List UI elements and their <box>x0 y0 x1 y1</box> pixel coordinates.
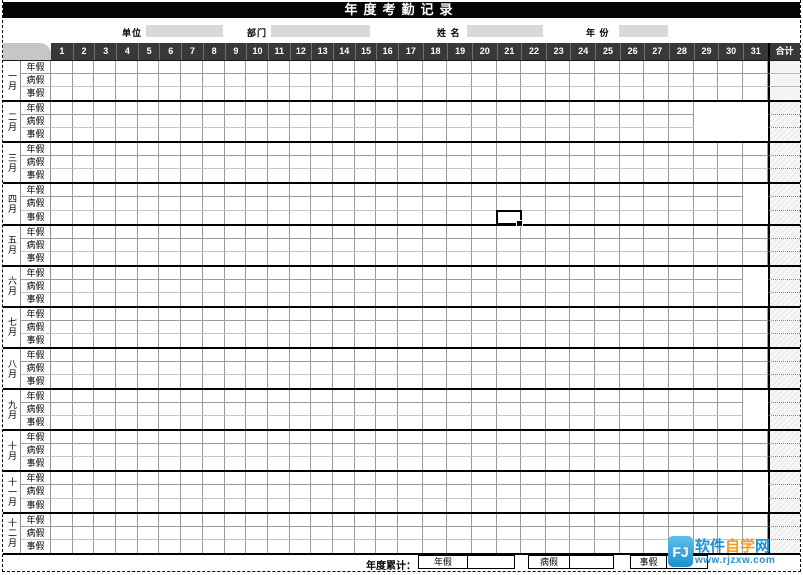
day-cell[interactable] <box>718 87 743 100</box>
day-cell[interactable] <box>669 499 694 512</box>
day-cell[interactable] <box>116 403 138 416</box>
day-cell[interactable] <box>73 239 95 252</box>
day-cell[interactable] <box>159 74 181 87</box>
day-cell[interactable] <box>246 184 268 197</box>
day-cell[interactable] <box>546 540 571 553</box>
day-cell[interactable] <box>203 239 225 252</box>
day-cell[interactable] <box>311 334 333 347</box>
day-cell[interactable] <box>138 169 160 182</box>
day-cell[interactable] <box>620 211 645 224</box>
day-cell[interactable] <box>290 74 312 87</box>
day-cell[interactable] <box>51 485 73 498</box>
day-cell[interactable] <box>447 362 472 375</box>
total-cell[interactable] <box>768 308 800 321</box>
day-cell[interactable] <box>447 457 472 470</box>
day-cell[interactable] <box>743 143 768 156</box>
selected-cell[interactable] <box>497 211 522 224</box>
day-cell[interactable] <box>290 375 312 388</box>
day-cell[interactable] <box>546 61 571 74</box>
day-cell[interactable] <box>355 362 377 375</box>
day-cell[interactable] <box>268 334 290 347</box>
day-cell[interactable] <box>694 472 719 485</box>
day-cell[interactable] <box>644 457 669 470</box>
day-cell[interactable] <box>546 457 571 470</box>
day-cell[interactable] <box>311 485 333 498</box>
day-cell[interactable] <box>447 74 472 87</box>
day-cell[interactable] <box>644 403 669 416</box>
day-cell[interactable] <box>159 102 181 115</box>
day-cell[interactable] <box>138 293 160 306</box>
day-cell[interactable] <box>497 87 522 100</box>
day-cell[interactable] <box>355 128 377 141</box>
day-cell[interactable] <box>116 87 138 100</box>
day-cell[interactable] <box>246 457 268 470</box>
day-cell[interactable] <box>546 403 571 416</box>
day-cell[interactable] <box>743 334 768 347</box>
day-cell[interactable] <box>472 403 497 416</box>
day-cell[interactable] <box>472 334 497 347</box>
day-cell[interactable] <box>225 211 247 224</box>
day-cell[interactable] <box>743 457 768 470</box>
day-cell[interactable] <box>398 239 423 252</box>
day-cell[interactable] <box>225 184 247 197</box>
day-cell[interactable] <box>290 156 312 169</box>
day-cell[interactable] <box>203 431 225 444</box>
day-cell[interactable] <box>497 184 522 197</box>
day-cell[interactable] <box>94 349 116 362</box>
day-cell[interactable] <box>333 115 355 128</box>
day-cell[interactable] <box>311 128 333 141</box>
day-cell[interactable] <box>620 308 645 321</box>
day-cell[interactable] <box>311 211 333 224</box>
day-cell[interactable] <box>497 102 522 115</box>
day-cell[interactable] <box>620 362 645 375</box>
day-cell[interactable] <box>743 514 768 527</box>
day-cell[interactable] <box>497 334 522 347</box>
total-cell[interactable] <box>768 267 800 280</box>
day-cell[interactable] <box>447 431 472 444</box>
day-cell[interactable] <box>94 115 116 128</box>
day-cell[interactable] <box>203 514 225 527</box>
day-cell[interactable] <box>620 197 645 210</box>
day-cell[interactable] <box>290 444 312 457</box>
day-cell[interactable] <box>546 211 571 224</box>
day-cell[interactable] <box>620 169 645 182</box>
day-cell[interactable] <box>447 444 472 457</box>
day-cell[interactable] <box>620 321 645 334</box>
day-cell[interactable] <box>472 87 497 100</box>
day-cell[interactable] <box>595 514 620 527</box>
day-cell[interactable] <box>355 334 377 347</box>
total-cell[interactable] <box>768 143 800 156</box>
day-cell[interactable] <box>159 499 181 512</box>
day-cell[interactable] <box>521 540 546 553</box>
day-cell[interactable] <box>333 239 355 252</box>
day-cell[interactable] <box>138 74 160 87</box>
day-cell[interactable] <box>718 321 743 334</box>
day-cell[interactable] <box>644 169 669 182</box>
day-cell[interactable] <box>51 444 73 457</box>
day-cell[interactable] <box>644 321 669 334</box>
total-cell[interactable] <box>768 280 800 293</box>
day-cell[interactable] <box>423 252 448 265</box>
day-cell[interactable] <box>138 143 160 156</box>
day-cell[interactable] <box>225 293 247 306</box>
day-cell[interactable] <box>51 472 73 485</box>
day-cell[interactable] <box>694 499 719 512</box>
day-cell[interactable] <box>472 457 497 470</box>
total-cell[interactable] <box>768 293 800 306</box>
day-cell[interactable] <box>311 197 333 210</box>
day-cell[interactable] <box>398 321 423 334</box>
day-cell[interactable] <box>290 115 312 128</box>
day-cell[interactable] <box>246 252 268 265</box>
day-cell[interactable] <box>398 102 423 115</box>
day-cell[interactable] <box>51 280 73 293</box>
day-cell[interactable] <box>311 74 333 87</box>
total-cell[interactable] <box>768 226 800 239</box>
day-cell[interactable] <box>398 390 423 403</box>
day-cell[interactable] <box>138 457 160 470</box>
day-cell[interactable] <box>376 457 398 470</box>
day-cell[interactable] <box>423 239 448 252</box>
day-cell[interactable] <box>159 431 181 444</box>
day-cell[interactable] <box>246 321 268 334</box>
day-cell[interactable] <box>546 375 571 388</box>
day-cell[interactable] <box>311 169 333 182</box>
day-cell[interactable] <box>73 349 95 362</box>
day-cell[interactable] <box>51 267 73 280</box>
day-cell[interactable] <box>159 293 181 306</box>
day-cell[interactable] <box>620 267 645 280</box>
day-cell[interactable] <box>181 87 203 100</box>
day-cell[interactable] <box>203 334 225 347</box>
day-cell[interactable] <box>159 444 181 457</box>
day-cell[interactable] <box>94 280 116 293</box>
day-cell[interactable] <box>497 527 522 540</box>
day-cell[interactable] <box>268 252 290 265</box>
day-cell[interactable] <box>718 226 743 239</box>
day-cell[interactable] <box>116 156 138 169</box>
day-cell[interactable] <box>51 308 73 321</box>
day-cell[interactable] <box>355 485 377 498</box>
day-cell[interactable] <box>246 226 268 239</box>
day-cell[interactable] <box>669 390 694 403</box>
day-cell[interactable] <box>546 184 571 197</box>
day-cell[interactable] <box>376 334 398 347</box>
total-cell[interactable] <box>768 321 800 334</box>
day-cell[interactable] <box>521 362 546 375</box>
day-cell[interactable] <box>376 211 398 224</box>
day-cell[interactable] <box>694 143 719 156</box>
day-cell[interactable] <box>694 444 719 457</box>
day-cell[interactable] <box>333 61 355 74</box>
day-cell[interactable] <box>333 74 355 87</box>
day-cell[interactable] <box>225 128 247 141</box>
day-cell[interactable] <box>376 431 398 444</box>
day-cell[interactable] <box>669 197 694 210</box>
day-cell[interactable] <box>570 211 595 224</box>
day-cell[interactable] <box>355 403 377 416</box>
day-cell[interactable] <box>51 197 73 210</box>
day-cell[interactable] <box>290 362 312 375</box>
day-cell[interactable] <box>423 293 448 306</box>
day-cell[interactable] <box>203 293 225 306</box>
day-cell[interactable] <box>570 87 595 100</box>
day-cell[interactable] <box>73 444 95 457</box>
day-cell[interactable] <box>73 197 95 210</box>
day-cell[interactable] <box>116 197 138 210</box>
day-cell[interactable] <box>595 321 620 334</box>
day-cell[interactable] <box>246 156 268 169</box>
day-cell[interactable] <box>644 74 669 87</box>
day-cell[interactable] <box>51 61 73 74</box>
day-cell[interactable] <box>225 375 247 388</box>
day-cell[interactable] <box>743 169 768 182</box>
day-cell[interactable] <box>376 390 398 403</box>
day-cell[interactable] <box>521 390 546 403</box>
day-cell[interactable] <box>423 457 448 470</box>
day-cell[interactable] <box>290 403 312 416</box>
day-cell[interactable] <box>94 540 116 553</box>
day-cell[interactable] <box>620 375 645 388</box>
day-cell[interactable] <box>51 239 73 252</box>
day-cell[interactable] <box>570 514 595 527</box>
day-cell[interactable] <box>570 115 595 128</box>
day-cell[interactable] <box>398 375 423 388</box>
day-cell[interactable] <box>718 239 743 252</box>
total-cell[interactable] <box>768 457 800 470</box>
total-cell[interactable] <box>768 416 800 429</box>
day-cell[interactable] <box>94 485 116 498</box>
day-cell[interactable] <box>203 128 225 141</box>
day-cell[interactable] <box>94 143 116 156</box>
day-cell[interactable] <box>116 102 138 115</box>
day-cell[interactable] <box>595 252 620 265</box>
day-cell[interactable] <box>268 211 290 224</box>
day-cell[interactable] <box>521 499 546 512</box>
day-cell[interactable] <box>497 349 522 362</box>
day-cell[interactable] <box>694 514 719 527</box>
day-cell[interactable] <box>51 293 73 306</box>
day-cell[interactable] <box>398 293 423 306</box>
day-cell[interactable] <box>94 431 116 444</box>
day-cell[interactable] <box>116 226 138 239</box>
day-cell[interactable] <box>644 252 669 265</box>
day-cell[interactable] <box>181 375 203 388</box>
day-cell[interactable] <box>595 87 620 100</box>
day-cell[interactable] <box>246 514 268 527</box>
day-cell[interactable] <box>225 156 247 169</box>
day-cell[interactable] <box>159 416 181 429</box>
day-cell[interactable] <box>644 267 669 280</box>
day-cell[interactable] <box>159 169 181 182</box>
day-cell[interactable] <box>694 321 719 334</box>
day-cell[interactable] <box>472 184 497 197</box>
day-cell[interactable] <box>246 485 268 498</box>
day-cell[interactable] <box>497 540 522 553</box>
day-cell[interactable] <box>268 156 290 169</box>
day-cell[interactable] <box>570 156 595 169</box>
day-cell[interactable] <box>290 252 312 265</box>
day-cell[interactable] <box>246 211 268 224</box>
day-cell[interactable] <box>311 514 333 527</box>
day-cell[interactable] <box>447 87 472 100</box>
total-cell[interactable] <box>768 485 800 498</box>
day-cell[interactable] <box>669 349 694 362</box>
day-cell[interactable] <box>311 293 333 306</box>
day-cell[interactable] <box>290 197 312 210</box>
day-cell[interactable] <box>94 197 116 210</box>
day-cell[interactable] <box>51 390 73 403</box>
day-cell[interactable] <box>203 403 225 416</box>
day-cell[interactable] <box>644 485 669 498</box>
total-cell[interactable] <box>768 115 800 128</box>
day-cell[interactable] <box>743 375 768 388</box>
day-cell[interactable] <box>355 169 377 182</box>
day-cell[interactable] <box>94 102 116 115</box>
day-cell[interactable] <box>333 128 355 141</box>
day-cell[interactable] <box>333 527 355 540</box>
day-cell[interactable] <box>311 540 333 553</box>
day-cell[interactable] <box>472 416 497 429</box>
day-cell[interactable] <box>159 472 181 485</box>
day-cell[interactable] <box>423 143 448 156</box>
day-cell[interactable] <box>423 431 448 444</box>
day-cell[interactable] <box>73 226 95 239</box>
day-cell[interactable] <box>311 390 333 403</box>
day-cell[interactable] <box>333 403 355 416</box>
day-cell[interactable] <box>181 308 203 321</box>
day-cell[interactable] <box>51 226 73 239</box>
day-cell[interactable] <box>94 169 116 182</box>
day-cell[interactable] <box>225 514 247 527</box>
day-cell[interactable] <box>116 321 138 334</box>
day-cell[interactable] <box>181 457 203 470</box>
day-cell[interactable] <box>694 169 719 182</box>
day-cell[interactable] <box>94 293 116 306</box>
day-cell[interactable] <box>447 169 472 182</box>
day-cell[interactable] <box>138 362 160 375</box>
day-cell[interactable] <box>423 514 448 527</box>
day-cell[interactable] <box>268 375 290 388</box>
day-cell[interactable] <box>225 540 247 553</box>
day-cell[interactable] <box>644 280 669 293</box>
day-cell[interactable] <box>644 390 669 403</box>
day-cell[interactable] <box>355 321 377 334</box>
day-cell[interactable] <box>521 472 546 485</box>
day-cell[interactable] <box>116 334 138 347</box>
day-cell[interactable] <box>333 334 355 347</box>
day-cell[interactable] <box>595 211 620 224</box>
total-cell[interactable] <box>768 211 800 224</box>
day-cell[interactable] <box>694 431 719 444</box>
day-cell[interactable] <box>472 485 497 498</box>
day-cell[interactable] <box>94 156 116 169</box>
unit-input[interactable] <box>146 25 223 37</box>
day-cell[interactable] <box>94 252 116 265</box>
day-cell[interactable] <box>333 362 355 375</box>
day-cell[interactable] <box>333 499 355 512</box>
day-cell[interactable] <box>268 267 290 280</box>
day-cell[interactable] <box>203 184 225 197</box>
day-cell[interactable] <box>376 184 398 197</box>
day-cell[interactable] <box>472 211 497 224</box>
day-cell[interactable] <box>246 308 268 321</box>
day-cell[interactable] <box>51 169 73 182</box>
day-cell[interactable] <box>116 74 138 87</box>
day-cell[interactable] <box>423 308 448 321</box>
day-cell[interactable] <box>398 252 423 265</box>
day-cell[interactable] <box>116 514 138 527</box>
day-cell[interactable] <box>398 74 423 87</box>
day-cell[interactable] <box>181 334 203 347</box>
day-cell[interactable] <box>225 444 247 457</box>
day-cell[interactable] <box>355 115 377 128</box>
day-cell[interactable] <box>203 74 225 87</box>
day-cell[interactable] <box>694 239 719 252</box>
day-cell[interactable] <box>546 226 571 239</box>
day-cell[interactable] <box>472 472 497 485</box>
day-cell[interactable] <box>570 197 595 210</box>
day-cell[interactable] <box>595 362 620 375</box>
day-cell[interactable] <box>669 416 694 429</box>
day-cell[interactable] <box>333 349 355 362</box>
day-cell[interactable] <box>51 416 73 429</box>
day-cell[interactable] <box>398 184 423 197</box>
day-cell[interactable] <box>225 280 247 293</box>
day-cell[interactable] <box>497 280 522 293</box>
day-cell[interactable] <box>620 514 645 527</box>
day-cell[interactable] <box>497 390 522 403</box>
day-cell[interactable] <box>355 211 377 224</box>
day-cell[interactable] <box>181 321 203 334</box>
day-cell[interactable] <box>290 239 312 252</box>
day-cell[interactable] <box>472 431 497 444</box>
day-cell[interactable] <box>311 431 333 444</box>
day-cell[interactable] <box>644 375 669 388</box>
day-cell[interactable] <box>620 184 645 197</box>
day-cell[interactable] <box>51 540 73 553</box>
day-cell[interactable] <box>225 349 247 362</box>
day-cell[interactable] <box>355 431 377 444</box>
day-cell[interactable] <box>521 184 546 197</box>
day-cell[interactable] <box>138 87 160 100</box>
day-cell[interactable] <box>669 472 694 485</box>
day-cell[interactable] <box>290 184 312 197</box>
day-cell[interactable] <box>423 362 448 375</box>
day-cell[interactable] <box>644 514 669 527</box>
day-cell[interactable] <box>311 156 333 169</box>
day-cell[interactable] <box>73 375 95 388</box>
day-cell[interactable] <box>644 156 669 169</box>
day-cell[interactable] <box>570 252 595 265</box>
day-cell[interactable] <box>546 362 571 375</box>
day-cell[interactable] <box>423 527 448 540</box>
day-cell[interactable] <box>644 472 669 485</box>
day-cell[interactable] <box>620 74 645 87</box>
day-cell[interactable] <box>246 499 268 512</box>
day-cell[interactable] <box>447 156 472 169</box>
day-cell[interactable] <box>333 267 355 280</box>
total-cell[interactable] <box>768 431 800 444</box>
day-cell[interactable] <box>311 403 333 416</box>
day-cell[interactable] <box>290 308 312 321</box>
day-cell[interactable] <box>546 102 571 115</box>
day-cell[interactable] <box>398 540 423 553</box>
day-cell[interactable] <box>620 87 645 100</box>
total-cell[interactable] <box>768 87 800 100</box>
